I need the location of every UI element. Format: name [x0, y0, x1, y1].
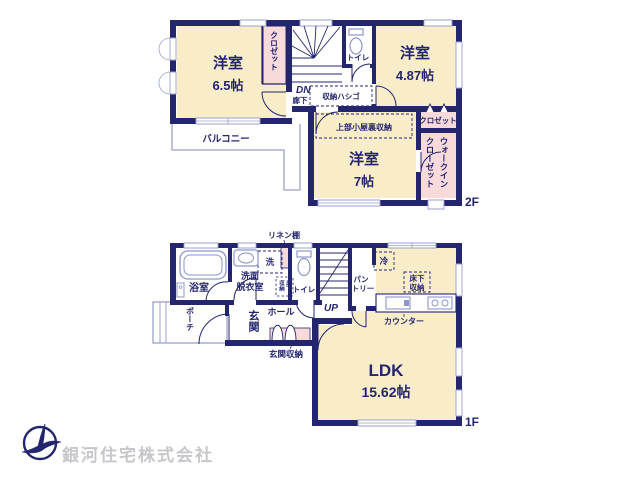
floor-plan-page: 洋室 6.5帖 クロゼット DN 廊下 トイレ 洋室 4.87帖 収納ハシゴ 上…	[0, 0, 640, 480]
label-2f: 2F	[465, 195, 479, 209]
label-linen-shelf: リネン棚	[268, 230, 300, 240]
floor-2f: 洋室 6.5帖 クロゼット DN 廊下 トイレ 洋室 4.87帖 収納ハシゴ 上…	[159, 20, 479, 209]
label-2f-dn: DN	[296, 85, 311, 96]
stairs-2f-treads	[292, 26, 342, 82]
label-underfloor-kitchen-l2: 収納	[410, 282, 425, 292]
label-pantry-l2: トリー	[352, 284, 375, 293]
label-bathroom: 浴室	[189, 281, 209, 294]
label-porch: ポーチ	[186, 306, 195, 331]
label-2f-bedroom487-size: 4.87帖	[396, 68, 434, 83]
label-2f-bedroom65-size: 6.5帖	[212, 78, 243, 93]
label-2f-closet-right: クロゼット	[419, 115, 457, 125]
floor-1f: 浴室 洗面 脱衣室 洗 リネン棚 床下 収納 トイレ UP パン トリー 冷 床…	[153, 230, 479, 429]
label-washer: 洗	[266, 257, 275, 267]
label-fridge: 冷	[380, 256, 389, 266]
kitchen-faucet-icon	[404, 300, 409, 306]
label-2f-bedroom7-size: 7帖	[354, 174, 374, 189]
label-washroom-l2: 脱衣室	[236, 281, 263, 292]
label-2f-wic-col2: クローゼット	[425, 136, 435, 188]
label-2f-bedroom487-name: 洋室	[400, 44, 430, 62]
company-branding: 銀河住宅株式会社	[22, 424, 214, 465]
label-1f: 1F	[465, 415, 479, 429]
label-ldk-name: LDK	[369, 361, 405, 380]
kitchen-counter	[376, 294, 456, 312]
room-2f-bedroom-487	[374, 26, 456, 106]
label-entrance-storage: 玄関収納	[269, 349, 303, 359]
label-2f-wic-col1: ウォークイン	[439, 137, 449, 188]
label-2f-storage-ladder: 収納ハシゴ	[322, 91, 360, 101]
label-up: UP	[324, 303, 338, 314]
floor-plan-drawing: 洋室 6.5帖 クロゼット DN 廊下 トイレ 洋室 4.87帖 収納ハシゴ 上…	[0, 0, 640, 480]
label-2f-bedroom7-name: 洋室	[349, 150, 379, 168]
company-name: 銀河住宅株式会社	[62, 445, 214, 465]
label-toilet-1f: トイレ	[293, 285, 316, 294]
label-2f-bedroom65-name: 洋室	[213, 54, 243, 72]
washbasin-fixture	[234, 250, 258, 266]
label-2f-attic-storage: 上部小屋裏収納	[336, 122, 392, 132]
stairs-1f-treads	[320, 250, 348, 295]
label-underfloor-kitchen-l1: 床下	[410, 273, 425, 283]
label-ldk-size: 15.62帖	[361, 384, 410, 400]
label-entrance: 玄関	[247, 309, 260, 333]
label-counter: カウンター	[384, 316, 424, 326]
label-2f-closet-left: クロゼット	[270, 31, 279, 71]
label-pantry-l1: パン	[353, 274, 369, 284]
label-hall: ホール	[267, 307, 294, 317]
label-2f-toilet: トイレ	[347, 53, 370, 62]
label-2f-corridor: 廊下	[293, 95, 308, 105]
label-underfloor-washroom-c1: 床下	[285, 279, 292, 293]
label-underfloor-washroom-c2: 収納	[278, 279, 285, 293]
label-washroom-l1: 洗面	[241, 270, 259, 281]
label-balcony: バルコニー	[202, 133, 249, 145]
company-logo-icon	[22, 424, 61, 459]
toilet-2f-fixture	[349, 29, 363, 54]
toilet-1f-fixture	[297, 251, 311, 276]
